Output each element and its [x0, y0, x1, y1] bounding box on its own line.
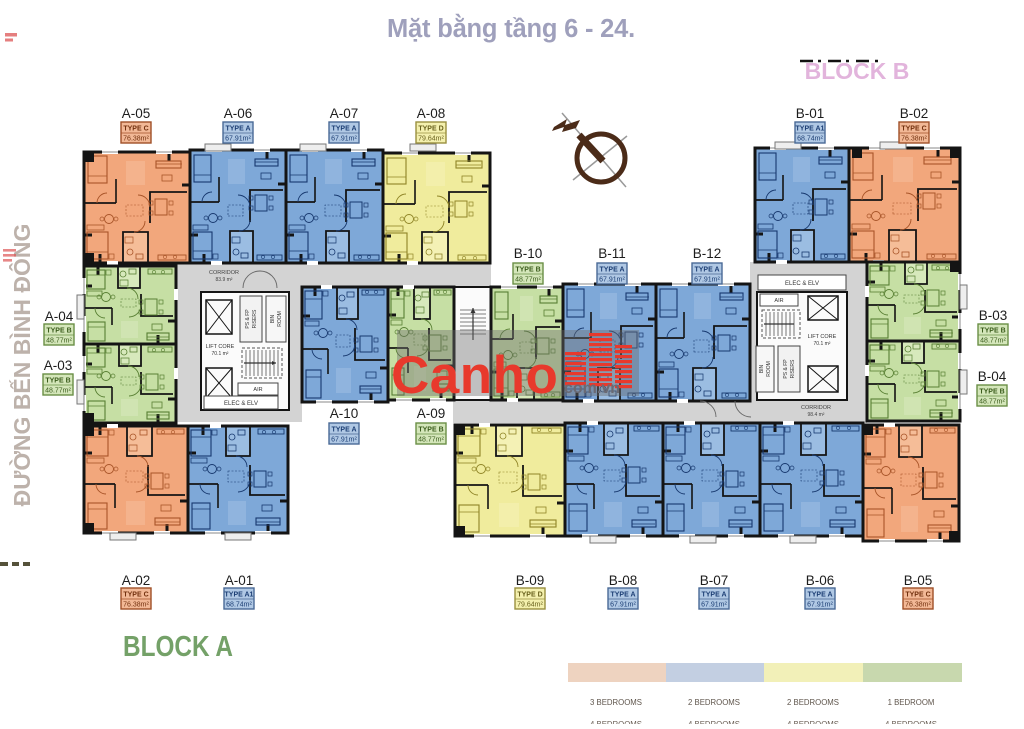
svg-text:67.91m²: 67.91m²	[610, 602, 636, 609]
svg-text:TYPE D: TYPE D	[517, 592, 542, 599]
svg-text:67.91m²: 67.91m²	[225, 136, 251, 143]
svg-text:com.vn: com.vn	[564, 380, 620, 397]
svg-text:A-01: A-01	[225, 573, 254, 588]
svg-text:68.74m²: 68.74m²	[226, 602, 252, 609]
svg-text:ROOM: ROOM	[766, 361, 772, 377]
svg-text:ĐƯỜNG BẾN BÌNH ĐÔNG: ĐƯỜNG BẾN BÌNH ĐÔNG	[8, 224, 35, 507]
svg-text:76.38m²: 76.38m²	[123, 136, 149, 143]
svg-text:A-10: A-10	[330, 406, 359, 421]
svg-text:TYPE A1: TYPE A1	[225, 592, 254, 599]
svg-text:TYPE A: TYPE A	[599, 267, 624, 274]
svg-text:4 BEDROOMS: 4 BEDROOMS	[590, 720, 642, 724]
svg-text:B-09: B-09	[516, 573, 545, 588]
svg-text:68.74m²: 68.74m²	[797, 136, 823, 143]
svg-text:RISERS: RISERS	[252, 309, 258, 328]
svg-text:TYPE D: TYPE D	[418, 126, 443, 133]
svg-text:Mặt bằng tầng 6 - 24.: Mặt bằng tầng 6 - 24.	[387, 13, 635, 43]
svg-text:BLOCK A: BLOCK A	[123, 630, 233, 662]
svg-text:B-12: B-12	[693, 246, 722, 261]
svg-text:TYPE C: TYPE C	[123, 592, 148, 599]
svg-text:48.77m²: 48.77m²	[418, 437, 444, 444]
svg-text:LIFT CORE: LIFT CORE	[206, 344, 235, 350]
svg-text:TYPE B: TYPE B	[46, 328, 71, 335]
svg-text:LIFT CORE: LIFT CORE	[808, 334, 837, 340]
svg-text:B-11: B-11	[598, 246, 626, 261]
svg-text:TYPE C: TYPE C	[905, 592, 930, 599]
svg-text:A-04: A-04	[45, 309, 74, 324]
svg-text:67.91m²: 67.91m²	[331, 437, 357, 444]
svg-text:2 BEDROOMS: 2 BEDROOMS	[787, 698, 839, 707]
svg-text:A-09: A-09	[417, 406, 446, 421]
svg-text:TYPE B: TYPE B	[418, 427, 443, 434]
svg-text:PS & FP: PS & FP	[783, 359, 789, 379]
svg-text:B-06: B-06	[806, 573, 835, 588]
svg-text:B-10: B-10	[514, 246, 543, 261]
svg-text:ELEC & ELV: ELEC & ELV	[785, 281, 819, 287]
svg-text:TYPE C: TYPE C	[901, 126, 926, 133]
svg-text:3 BEDROOMS: 3 BEDROOMS	[590, 698, 642, 707]
svg-text:A-07: A-07	[330, 106, 359, 121]
svg-text:A-05: A-05	[122, 106, 151, 121]
svg-text:B-07: B-07	[700, 573, 729, 588]
svg-text:83.9 m²: 83.9 m²	[216, 277, 233, 283]
svg-text:48.77m²: 48.77m²	[45, 388, 71, 395]
svg-text:BLOCK B: BLOCK B	[805, 58, 910, 84]
svg-text:TYPE B: TYPE B	[515, 267, 540, 274]
svg-text:ROOM: ROOM	[277, 311, 283, 327]
svg-text:Canho: Canho	[391, 346, 558, 405]
svg-text:70.1 m²: 70.1 m²	[814, 341, 831, 347]
svg-text:B-05: B-05	[904, 573, 933, 588]
svg-text:CORRIDOR: CORRIDOR	[801, 405, 831, 411]
svg-text:BIN: BIN	[270, 314, 276, 323]
svg-text:B-04: B-04	[978, 369, 1007, 384]
svg-text:76.38m²: 76.38m²	[123, 602, 149, 609]
svg-text:79.64m²: 79.64m²	[517, 602, 543, 609]
svg-text:TYPE A: TYPE A	[694, 267, 719, 274]
svg-text:B-02: B-02	[900, 106, 929, 121]
svg-text:76.38m²: 76.38m²	[901, 136, 927, 143]
svg-text:TYPE B: TYPE B	[979, 389, 1004, 396]
svg-text:48.77m²: 48.77m²	[979, 399, 1005, 406]
svg-text:AIR: AIR	[253, 387, 262, 393]
svg-text:TYPE B: TYPE B	[980, 328, 1005, 335]
svg-text:TYPE A: TYPE A	[331, 427, 356, 434]
svg-text:BIN: BIN	[759, 364, 765, 373]
svg-text:70.1 m²: 70.1 m²	[212, 351, 229, 357]
svg-text:A-06: A-06	[224, 106, 253, 121]
svg-text:B-03: B-03	[979, 308, 1008, 323]
svg-text:B-08: B-08	[609, 573, 638, 588]
svg-text:1 BEDROOM: 1 BEDROOM	[888, 698, 935, 707]
svg-text:TYPE B: TYPE B	[45, 378, 70, 385]
svg-text:48.77m²: 48.77m²	[515, 277, 541, 284]
svg-text:A-02: A-02	[122, 573, 151, 588]
svg-text:TYPE A: TYPE A	[331, 126, 356, 133]
svg-text:48.77m²: 48.77m²	[46, 338, 72, 345]
svg-text:TYPE A: TYPE A	[701, 592, 726, 599]
svg-text:TYPE A: TYPE A	[807, 592, 832, 599]
svg-text:AIR: AIR	[774, 298, 783, 304]
svg-text:RISERS: RISERS	[790, 359, 796, 378]
svg-text:PS & FP: PS & FP	[245, 309, 251, 329]
svg-text:4 BEDROOMS: 4 BEDROOMS	[787, 720, 839, 724]
svg-text:79.64m²: 79.64m²	[418, 136, 444, 143]
svg-text:48.77m²: 48.77m²	[980, 338, 1006, 345]
svg-text:TYPE A: TYPE A	[610, 592, 635, 599]
svg-text:2 BEDROOMS: 2 BEDROOMS	[688, 698, 740, 707]
svg-text:67.91m²: 67.91m²	[599, 277, 625, 284]
svg-text:A-08: A-08	[417, 106, 446, 121]
svg-text:B-01: B-01	[796, 106, 825, 121]
svg-text:TYPE A: TYPE A	[225, 126, 250, 133]
svg-text:TYPE A1: TYPE A1	[796, 126, 825, 133]
svg-text:67.91m²: 67.91m²	[331, 136, 357, 143]
svg-text:A-03: A-03	[44, 358, 73, 373]
svg-text:CORRIDOR: CORRIDOR	[209, 270, 239, 276]
svg-text:4 BEDROOMS: 4 BEDROOMS	[885, 720, 937, 724]
svg-text:76.38m²: 76.38m²	[905, 602, 931, 609]
svg-text:TYPE C: TYPE C	[123, 126, 148, 133]
svg-text:67.91m²: 67.91m²	[694, 277, 720, 284]
svg-text:67.91m²: 67.91m²	[701, 602, 727, 609]
svg-text:ELEC & ELV: ELEC & ELV	[224, 401, 258, 407]
svg-text:67.91m²: 67.91m²	[807, 602, 833, 609]
svg-text:4 BEDROOMS: 4 BEDROOMS	[688, 720, 740, 724]
svg-text:98.4 m²: 98.4 m²	[808, 412, 825, 418]
